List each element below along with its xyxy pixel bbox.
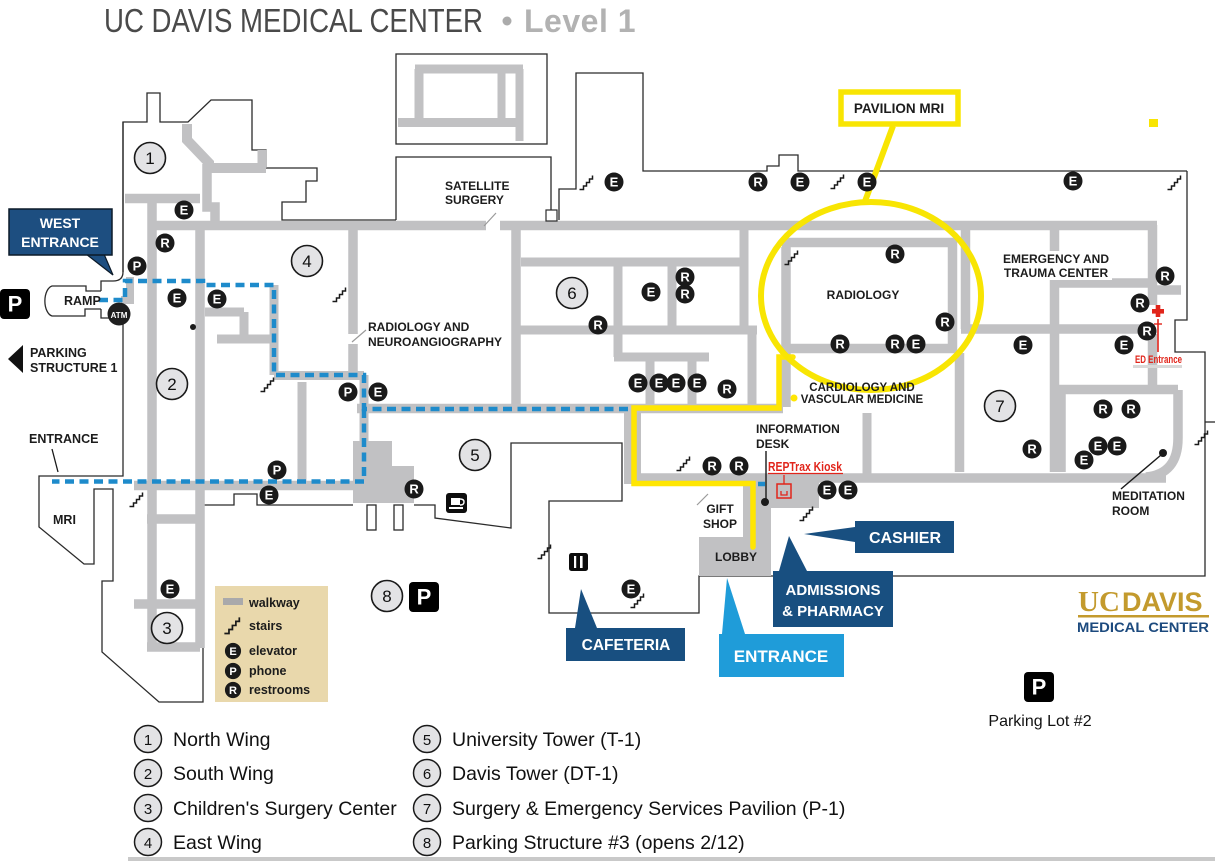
svg-text:MRI: MRI bbox=[53, 513, 76, 527]
svg-text:STRUCTURE 1: STRUCTURE 1 bbox=[30, 361, 118, 375]
svg-text:TRAUMA CENTER: TRAUMA CENTER bbox=[1004, 266, 1109, 280]
svg-text:WEST: WEST bbox=[40, 215, 81, 231]
svg-text:walkway: walkway bbox=[248, 596, 300, 610]
svg-text:MEDITATION: MEDITATION bbox=[1112, 489, 1185, 503]
svg-text:SHOP: SHOP bbox=[703, 517, 737, 531]
svg-text:ENTRANCE: ENTRANCE bbox=[21, 234, 99, 250]
svg-text:NEUROANGIOGRAPHY: NEUROANGIOGRAPHY bbox=[368, 335, 502, 349]
svg-text:Parking Lot #2: Parking Lot #2 bbox=[988, 713, 1091, 730]
svg-text:5: 5 bbox=[470, 446, 479, 465]
svg-text:Children's Surgery Center: Children's Surgery Center bbox=[173, 798, 397, 820]
svg-text:phone: phone bbox=[249, 664, 287, 678]
svg-text:stairs: stairs bbox=[249, 619, 282, 633]
svg-text:Parking Structure #3 (opens 2/: Parking Structure #3 (opens 2/12) bbox=[452, 832, 745, 854]
svg-text:2: 2 bbox=[167, 375, 176, 394]
svg-text:& PHARMACY: & PHARMACY bbox=[782, 603, 884, 620]
svg-text:CAFETERIA: CAFETERIA bbox=[582, 637, 671, 654]
svg-text:8: 8 bbox=[423, 835, 431, 852]
svg-text:elevator: elevator bbox=[249, 644, 297, 658]
svg-text:GIFT: GIFT bbox=[706, 502, 734, 516]
svg-text:University Tower (T-1): University Tower (T-1) bbox=[452, 729, 641, 751]
svg-text:VASCULAR MEDICINE: VASCULAR MEDICINE bbox=[801, 394, 924, 406]
svg-text:ATM: ATM bbox=[111, 311, 128, 320]
svg-text:8: 8 bbox=[382, 587, 391, 606]
svg-text:Surgery & Emergency Services P: Surgery & Emergency Services Pavilion (P… bbox=[452, 798, 845, 820]
svg-text:6: 6 bbox=[423, 766, 431, 783]
svg-text:1: 1 bbox=[144, 732, 152, 749]
svg-text:LOBBY: LOBBY bbox=[715, 550, 757, 564]
svg-text:North Wing: North Wing bbox=[173, 729, 271, 751]
svg-text:UC: UC bbox=[1078, 586, 1120, 618]
svg-text:RADIOLOGY: RADIOLOGY bbox=[827, 288, 900, 302]
svg-text:UC DAVIS MEDICAL CENTER: UC DAVIS MEDICAL CENTER bbox=[104, 2, 483, 39]
svg-text:ENTRANCE: ENTRANCE bbox=[29, 432, 98, 446]
svg-text:Level 1: Level 1 bbox=[524, 3, 636, 39]
svg-text:REPTrax Kiosk: REPTrax Kiosk bbox=[768, 460, 842, 474]
svg-text:2: 2 bbox=[144, 766, 152, 783]
svg-text:RAMP: RAMP bbox=[64, 294, 101, 308]
svg-text:SATELLITE: SATELLITE bbox=[445, 179, 509, 193]
svg-text:South Wing: South Wing bbox=[173, 763, 274, 785]
svg-text:MEDICAL CENTER: MEDICAL CENTER bbox=[1077, 620, 1209, 635]
svg-text:1: 1 bbox=[145, 149, 154, 168]
svg-text:East Wing: East Wing bbox=[173, 832, 262, 854]
svg-text:E: E bbox=[229, 646, 236, 658]
svg-text:ROOM: ROOM bbox=[1112, 504, 1149, 518]
svg-text:4: 4 bbox=[144, 835, 152, 852]
svg-text:RADIOLOGY AND: RADIOLOGY AND bbox=[368, 320, 470, 334]
svg-text:DAVIS: DAVIS bbox=[1122, 587, 1203, 617]
svg-text:7: 7 bbox=[995, 397, 1004, 416]
svg-text:PAVILION MRI: PAVILION MRI bbox=[854, 101, 944, 116]
svg-text:restrooms: restrooms bbox=[249, 683, 310, 697]
svg-text:4: 4 bbox=[302, 252, 311, 271]
svg-text:ED Entrance: ED Entrance bbox=[1135, 354, 1182, 366]
svg-text:INFORMATION: INFORMATION bbox=[756, 422, 840, 436]
svg-text:EMERGENCY AND: EMERGENCY AND bbox=[1003, 252, 1109, 266]
svg-text:Davis Tower (DT-1): Davis Tower (DT-1) bbox=[452, 763, 619, 785]
svg-text:ADMISSIONS: ADMISSIONS bbox=[785, 582, 880, 599]
svg-text:ENTRANCE: ENTRANCE bbox=[734, 647, 828, 666]
svg-text:CASHIER: CASHIER bbox=[869, 530, 941, 547]
svg-text:SURGERY: SURGERY bbox=[445, 193, 504, 207]
svg-text:5: 5 bbox=[423, 732, 431, 749]
svg-text:CARDIOLOGY AND: CARDIOLOGY AND bbox=[809, 382, 914, 394]
svg-text:P: P bbox=[229, 666, 236, 678]
svg-text:6: 6 bbox=[567, 284, 576, 303]
svg-text:R: R bbox=[229, 685, 237, 697]
svg-text:PARKING: PARKING bbox=[30, 346, 87, 360]
svg-text:3: 3 bbox=[144, 801, 152, 818]
svg-text:3: 3 bbox=[162, 619, 171, 638]
svg-text:DESK: DESK bbox=[756, 437, 790, 451]
svg-text:7: 7 bbox=[423, 801, 431, 818]
